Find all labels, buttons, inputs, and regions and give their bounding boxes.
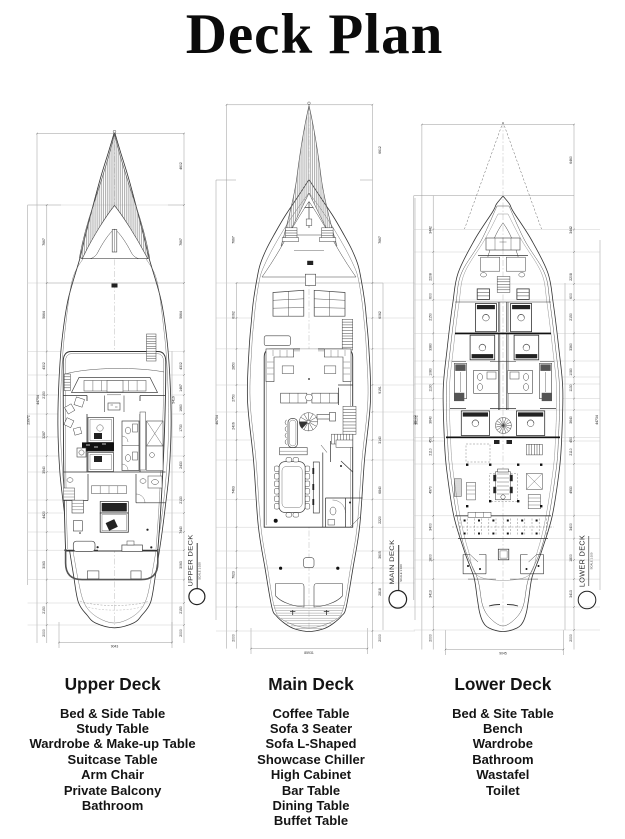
svg-text:9045: 9045: [499, 651, 507, 655]
svg-text:MAIN DECK: MAIN DECK: [389, 539, 395, 584]
svg-text:4602: 4602: [179, 162, 183, 170]
svg-text:3640: 3640: [428, 416, 432, 424]
svg-text:1130: 1130: [569, 384, 573, 391]
svg-text:9043: 9043: [111, 645, 119, 649]
svg-text:7667: 7667: [42, 238, 46, 246]
svg-text:4420: 4420: [42, 511, 46, 519]
svg-text:3442: 3442: [569, 226, 573, 234]
svg-text:SCALE 1:100: SCALE 1:100: [590, 552, 594, 569]
svg-text:44754: 44754: [36, 395, 40, 405]
svg-text:2000: 2000: [569, 634, 573, 642]
svg-text:3605: 3605: [378, 551, 382, 559]
svg-text:46754: 46754: [215, 415, 219, 425]
svg-text:2000: 2000: [428, 634, 432, 642]
svg-text:2818: 2818: [378, 588, 382, 596]
svg-text:2750: 2750: [231, 394, 235, 402]
svg-text:7440: 7440: [179, 526, 183, 534]
svg-text:85931: 85931: [304, 651, 314, 655]
svg-text:6840: 6840: [378, 486, 382, 494]
svg-text:1730: 1730: [179, 424, 183, 432]
svg-text:3063: 3063: [42, 561, 46, 569]
svg-text:2850: 2850: [231, 362, 235, 370]
svg-text:1660: 1660: [179, 404, 183, 412]
svg-text:1467: 1467: [179, 384, 183, 392]
svg-text:2150: 2150: [428, 313, 432, 321]
svg-text:3140: 3140: [378, 436, 382, 444]
svg-text:2220: 2220: [378, 516, 382, 524]
svg-text:2000: 2000: [42, 629, 46, 637]
svg-text:2150: 2150: [179, 606, 183, 614]
svg-text:1130: 1130: [428, 384, 432, 391]
svg-text:7463: 7463: [231, 486, 235, 494]
svg-text:3380: 3380: [428, 343, 432, 351]
svg-text:2208: 2208: [428, 273, 432, 281]
svg-text:7667: 7667: [231, 236, 235, 244]
svg-text:2000: 2000: [231, 634, 235, 642]
svg-text:2150: 2150: [42, 606, 46, 614]
svg-text:600: 600: [569, 293, 573, 299]
svg-text:6062: 6062: [378, 311, 382, 319]
svg-text:1080: 1080: [569, 368, 573, 376]
svg-text:4930: 4930: [569, 486, 573, 494]
svg-text:6062: 6062: [231, 311, 235, 319]
svg-text:23972: 23972: [27, 415, 31, 425]
svg-text:5419: 5419: [172, 396, 176, 404]
svg-text:5664: 5664: [179, 311, 183, 319]
svg-text:2110: 2110: [428, 448, 432, 455]
svg-text:36102: 36102: [413, 415, 417, 425]
svg-text:7623: 7623: [231, 571, 235, 579]
svg-text:SCALE 1:100: SCALE 1:100: [399, 564, 403, 582]
svg-text:5664: 5664: [42, 311, 46, 319]
svg-text:3413: 3413: [428, 590, 432, 598]
svg-text:UPPER DECK: UPPER DECK: [188, 534, 194, 586]
svg-text:LOWER DECK: LOWER DECK: [578, 535, 587, 587]
svg-text:2000: 2000: [179, 629, 183, 637]
svg-text:44734: 44734: [595, 415, 599, 425]
svg-text:3360: 3360: [569, 343, 573, 351]
svg-text:2000: 2000: [378, 634, 382, 642]
svg-text:450: 450: [569, 437, 573, 443]
svg-text:4302: 4302: [179, 362, 183, 370]
svg-text:6460: 6460: [569, 156, 573, 164]
svg-text:SCALE 1:100: SCALE 1:100: [197, 562, 201, 580]
svg-text:2150: 2150: [42, 391, 46, 399]
svg-text:3413: 3413: [569, 590, 573, 598]
svg-text:450: 450: [428, 437, 432, 443]
svg-text:2130: 2130: [179, 496, 183, 504]
svg-text:600: 600: [428, 293, 432, 299]
svg-text:2110: 2110: [569, 448, 573, 455]
svg-text:3400: 3400: [428, 523, 432, 531]
svg-text:7667: 7667: [179, 238, 183, 246]
svg-text:4302: 4302: [42, 362, 46, 370]
svg-text:3540: 3540: [42, 466, 46, 474]
svg-text:1800: 1800: [428, 554, 432, 562]
svg-text:3063: 3063: [179, 561, 183, 569]
svg-text:3442: 3442: [428, 226, 432, 234]
svg-text:6612: 6612: [378, 146, 382, 154]
svg-text:2406: 2406: [231, 422, 235, 430]
svg-text:2208: 2208: [569, 273, 573, 281]
svg-text:3287: 3287: [42, 431, 46, 439]
svg-text:1800: 1800: [569, 554, 573, 562]
svg-text:7667: 7667: [378, 236, 382, 244]
svg-text:3400: 3400: [569, 523, 573, 531]
svg-text:1080: 1080: [428, 368, 432, 376]
svg-text:4970: 4970: [428, 486, 432, 494]
svg-text:3640: 3640: [569, 416, 573, 424]
svg-text:2430: 2430: [179, 461, 183, 469]
svg-text:2150: 2150: [569, 313, 573, 321]
svg-text:9191: 9191: [378, 386, 382, 394]
